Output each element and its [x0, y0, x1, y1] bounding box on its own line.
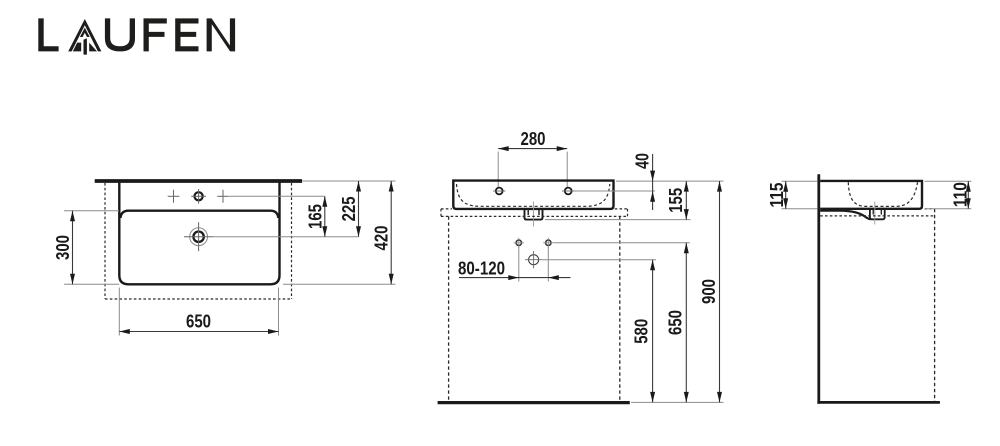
svg-text:580: 580 [631, 319, 652, 344]
svg-text:40: 40 [632, 153, 653, 169]
svg-text:650: 650 [186, 310, 211, 331]
svg-text:80-120: 80-120 [458, 258, 505, 279]
svg-text:110: 110 [950, 182, 971, 207]
svg-text:280: 280 [521, 128, 546, 149]
svg-text:420: 420 [370, 226, 391, 251]
svg-text:900: 900 [698, 279, 719, 304]
svg-text:165: 165 [304, 204, 325, 229]
svg-text:155: 155 [665, 188, 686, 213]
svg-text:300: 300 [52, 235, 73, 260]
svg-text:225: 225 [338, 196, 359, 221]
svg-text:650: 650 [664, 310, 685, 335]
svg-text:115: 115 [766, 183, 787, 208]
